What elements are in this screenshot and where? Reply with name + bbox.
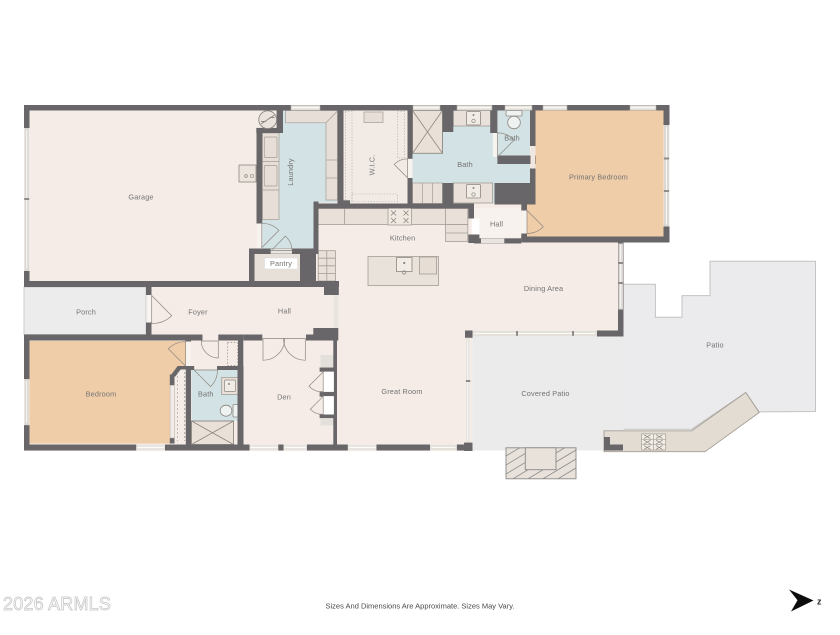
svg-text:Pantry: Pantry xyxy=(270,259,292,268)
svg-text:Bath: Bath xyxy=(457,160,473,169)
svg-text:Porch: Porch xyxy=(76,308,96,317)
svg-text:Bedroom: Bedroom xyxy=(86,390,117,399)
svg-text:Patio: Patio xyxy=(706,341,723,350)
svg-text:Bath: Bath xyxy=(198,390,214,399)
svg-text:Hall: Hall xyxy=(278,307,291,316)
svg-text:Kitchen: Kitchen xyxy=(390,233,415,242)
svg-text:Dining Area: Dining Area xyxy=(524,284,564,293)
svg-text:Covered Patio: Covered Patio xyxy=(521,389,569,398)
svg-text:W.I.C.: W.I.C. xyxy=(367,155,376,176)
svg-text:Den: Den xyxy=(277,393,291,402)
svg-text:Garage: Garage xyxy=(128,193,153,202)
svg-text:Primary Bedroom: Primary Bedroom xyxy=(569,173,628,182)
svg-text:Great Room: Great Room xyxy=(381,387,422,396)
svg-text:2026 ARMLS: 2026 ARMLS xyxy=(3,594,111,614)
svg-text:Foyer: Foyer xyxy=(188,308,208,317)
svg-text:Hall: Hall xyxy=(490,219,503,228)
svg-text:Sizes And Dimensions Are Appro: Sizes And Dimensions Are Approximate. Si… xyxy=(326,602,515,611)
svg-text:z: z xyxy=(817,597,822,607)
svg-text:Bath: Bath xyxy=(504,133,520,142)
svg-text:Laundry: Laundry xyxy=(286,158,295,186)
